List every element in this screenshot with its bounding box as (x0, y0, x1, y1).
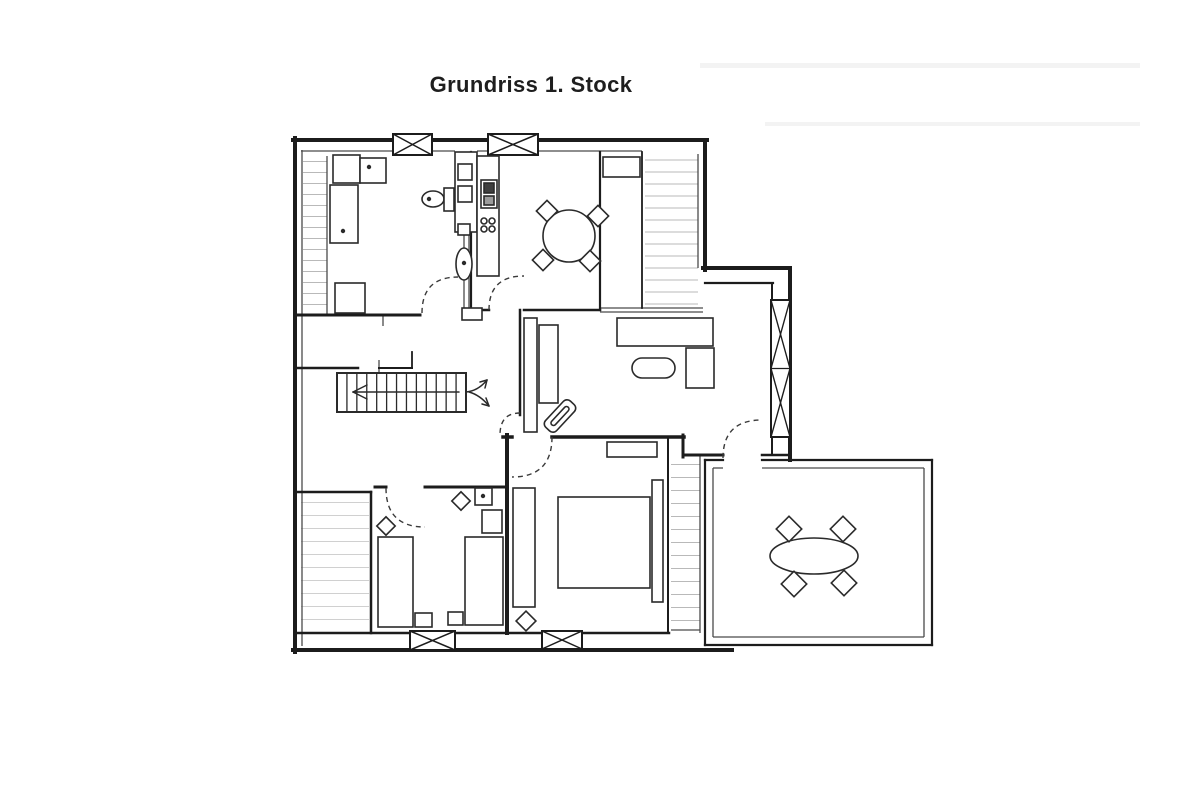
kitchen-counter (477, 156, 499, 276)
terrace-chair-2 (830, 516, 855, 541)
window-symbol (771, 300, 790, 437)
terrace-door (723, 420, 762, 458)
bedroom1-chair (516, 611, 536, 631)
roof-slope-hatch (301, 503, 369, 620)
dachterrasse-furniture (770, 516, 858, 596)
bath-cabinet (335, 283, 365, 313)
roof-slope-hatch (645, 160, 698, 304)
tv-lowboard (539, 325, 558, 403)
bedroom2-chair-1 (377, 517, 395, 535)
pedestal-sink-drain-dot (462, 261, 466, 265)
bad-door (422, 277, 458, 313)
floor-plan-drawing (0, 0, 1200, 800)
single-bed-left (378, 537, 413, 627)
double-bed (558, 497, 650, 588)
roof-slope-hatch (303, 162, 327, 305)
scan-streak (765, 122, 1140, 126)
floor-plan-page: Grundriss 1. Stock (0, 0, 1200, 800)
kitchen-sideboard (603, 157, 640, 177)
shaft-box-3 (458, 224, 470, 235)
dresser (482, 510, 502, 533)
burner-1 (481, 218, 487, 224)
hall-passage-door (500, 413, 520, 435)
window-symbol (542, 631, 582, 649)
bedroom2-chair-2 (452, 492, 470, 510)
bath-vanity (333, 155, 360, 183)
window-symbol (410, 631, 455, 650)
terrace-chair-1 (776, 516, 801, 541)
shower (330, 185, 358, 243)
bed-bench-left (415, 613, 432, 627)
coffee-table (632, 358, 675, 378)
bedroom1-door (512, 437, 552, 477)
toilet-drain-dot (427, 197, 431, 201)
burner-2 (489, 218, 495, 224)
stair-fork-arrow (466, 380, 487, 392)
roof-slope-hatch (671, 465, 700, 621)
bedroom2-door (386, 488, 425, 527)
window-symbol (393, 134, 432, 155)
toilet-cistern (444, 188, 454, 211)
bad-furniture (330, 152, 482, 320)
bed-headboard (652, 480, 663, 602)
bedroom1-sideboard (607, 442, 657, 457)
single-bed-right (465, 537, 503, 625)
corner-washbasin-drain-dot (481, 494, 485, 498)
shaft-box-2 (458, 186, 472, 202)
schlafzimmer1-furniture (513, 442, 663, 631)
terrace-chair-3 (781, 571, 806, 596)
window-symbol (488, 134, 538, 155)
shower-drain-dot (341, 229, 345, 233)
bed-bench-right (448, 612, 463, 625)
stove-detail (484, 196, 494, 205)
sofa (617, 318, 713, 346)
schlafzimmer2-furniture (377, 488, 503, 627)
kueche-furniture (477, 156, 640, 276)
wohnzimmer-furniture (524, 318, 714, 434)
stairs-layer (337, 373, 489, 412)
wardrobe (513, 488, 535, 607)
scan-streak (700, 63, 1140, 68)
wall-pier (462, 308, 482, 320)
terrace-chair-4 (831, 570, 856, 595)
toilet (422, 191, 444, 207)
burner-3 (481, 226, 487, 232)
shaft-box-1 (458, 164, 472, 180)
bath-vanity-2 (360, 158, 386, 183)
burner-4 (489, 226, 495, 232)
sofa-corner (686, 348, 714, 388)
terrace-table (770, 538, 858, 574)
kitchen-door (489, 276, 524, 310)
wall-shelf (524, 318, 537, 432)
scan-streaks-layer (700, 63, 1140, 126)
bath-vanity-2-drain-dot (367, 165, 371, 169)
stove-detail-dark (484, 183, 494, 193)
